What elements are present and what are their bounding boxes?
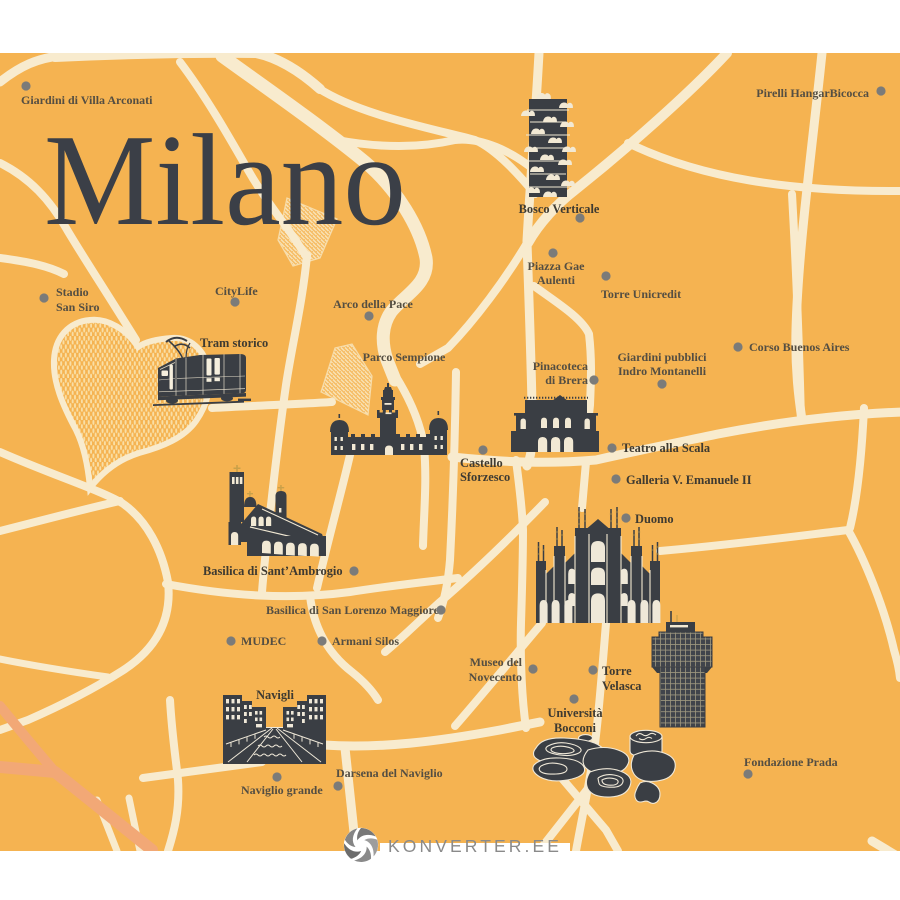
- svg-text:Stadio: Stadio: [56, 285, 89, 299]
- svg-text:Parco Sempione: Parco Sempione: [363, 350, 446, 364]
- svg-text:Indro Montanelli: Indro Montanelli: [618, 364, 707, 378]
- svg-text:Castello: Castello: [460, 456, 503, 470]
- svg-text:CityLife: CityLife: [215, 284, 258, 298]
- svg-text:Università: Università: [547, 706, 602, 720]
- svg-text:Museo del: Museo del: [470, 655, 523, 669]
- svg-text:KONVERTER.EE: KONVERTER.EE: [388, 836, 562, 856]
- svg-text:Fondazione Prada: Fondazione Prada: [744, 755, 838, 769]
- svg-text:San Siro: San Siro: [56, 300, 99, 314]
- svg-text:Naviglio grande: Naviglio grande: [241, 783, 323, 797]
- svg-text:Pirelli HangarBicocca: Pirelli HangarBicocca: [756, 86, 869, 100]
- svg-text:Giardini pubblici: Giardini pubblici: [617, 350, 707, 364]
- svg-text:Torre Unicredit: Torre Unicredit: [601, 287, 681, 301]
- svg-text:Darsena del Naviglio: Darsena del Naviglio: [336, 766, 443, 780]
- svg-text:Giardini di Villa Arconati: Giardini di Villa Arconati: [21, 93, 153, 107]
- svg-text:Duomo: Duomo: [635, 512, 674, 526]
- svg-text:Bosco Verticale: Bosco Verticale: [519, 202, 600, 216]
- svg-text:Basilica di San Lorenzo Maggio: Basilica di San Lorenzo Maggiore: [266, 603, 440, 617]
- svg-text:Velasca: Velasca: [602, 679, 641, 693]
- svg-text:Navigli: Navigli: [256, 688, 294, 702]
- svg-text:MUDEC: MUDEC: [241, 634, 286, 648]
- svg-text:Sforzesco: Sforzesco: [460, 470, 510, 484]
- svg-text:di Brera: di Brera: [545, 373, 588, 387]
- svg-text:Aulenti: Aulenti: [537, 273, 576, 287]
- svg-text:Corso Buenos Aires: Corso Buenos Aires: [749, 340, 850, 354]
- svg-text:Piazza Gae: Piazza Gae: [528, 259, 586, 273]
- svg-text:Teatro alla Scala: Teatro alla Scala: [622, 441, 710, 455]
- svg-text:Torre: Torre: [602, 664, 632, 678]
- svg-text:Novecento: Novecento: [469, 670, 522, 684]
- svg-text:Basilica di Sant’Ambrogio: Basilica di Sant’Ambrogio: [203, 564, 343, 578]
- svg-text:Armani Silos: Armani Silos: [332, 634, 399, 648]
- svg-text:Milano: Milano: [44, 108, 406, 253]
- svg-text:Bocconi: Bocconi: [554, 721, 597, 735]
- svg-text:Pinacoteca: Pinacoteca: [533, 359, 588, 373]
- svg-text:Arco della Pace: Arco della Pace: [333, 297, 413, 311]
- svg-text:Galleria V. Emanuele II: Galleria V. Emanuele II: [626, 473, 752, 487]
- svg-text:Tram storico: Tram storico: [200, 336, 268, 350]
